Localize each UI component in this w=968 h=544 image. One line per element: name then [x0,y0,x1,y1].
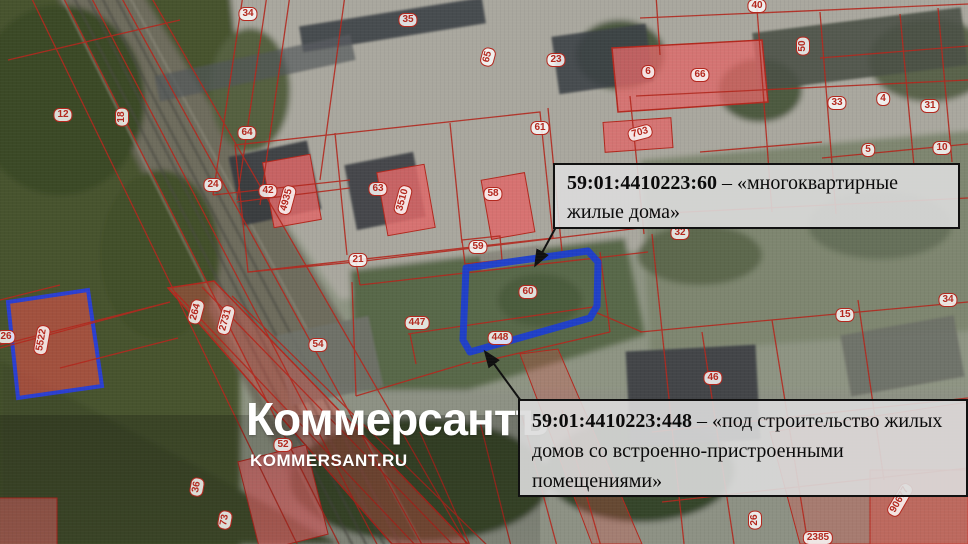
parcel-label: 64 [237,126,256,140]
callout-parcel-448: 59:01:4410223:448 – «под строительство ж… [518,399,968,497]
parcel-label: 23 [546,53,565,67]
parcel-label: 26 [0,330,16,344]
parcel-label: 63 [368,182,387,196]
parcel-label: 447 [405,316,430,330]
parcel-label: 50 [796,36,810,55]
parcel-label: 21 [348,253,367,267]
annotated-cadastral-map: 3435121865236424426358616664050334315107… [0,0,968,544]
parcel-label: 2731 [215,304,236,337]
parcel-label: 73 [216,509,233,530]
parcel-label: 34 [938,293,957,307]
parcel-label: 448 [488,331,513,345]
parcel-label: 26 [748,510,762,529]
parcel-label: 46 [703,371,722,385]
parcel-label: 18 [115,107,129,126]
parcel-label: 40 [747,0,766,13]
parcel-label: 4935 [276,184,297,217]
callout-separator: – [717,172,737,194]
kommersant-site-label: KOMMERSANT.RU [250,451,408,471]
parcel-label: 4 [876,92,890,106]
parcel-label: 5522 [32,324,51,356]
parcel-label: 34 [238,7,257,21]
parcel-label: 5 [861,143,875,157]
parcel-label: 42 [258,184,277,198]
parcel-label: 65 [479,46,497,68]
cadastral-number-60: 59:01:4410223:60 [567,172,717,194]
parcel-label: 59 [468,240,487,254]
parcel-label: 66 [690,68,709,82]
parcel-label: 10 [932,141,951,155]
parcel-label: 36 [188,476,205,497]
parcel-label: 12 [53,108,72,122]
parcel-label: 3510 [392,184,413,217]
callout-parcel-60: 59:01:4410223:60 – «многоквартирные жилы… [553,163,960,229]
parcel-label: 58 [483,187,502,201]
parcel-label: 31 [920,99,939,113]
parcel-label: 35 [398,13,417,27]
cadastral-number-448: 59:01:4410223:448 [532,410,692,432]
parcel-label: 15 [835,308,854,322]
callout-separator: – [692,410,712,432]
parcel-label: 264 [186,298,206,325]
parcel-label: 703 [626,123,653,143]
parcel-label: 33 [827,96,846,110]
parcel-label: 54 [308,338,327,352]
parcel-label: 2385 [803,531,833,544]
parcel-label: 6 [641,65,655,79]
parcel-label: 61 [530,121,549,135]
parcel-label: 60 [518,285,537,299]
parcel-label: 24 [203,178,222,192]
kommersant-logo: Коммерсантъ [246,396,548,442]
